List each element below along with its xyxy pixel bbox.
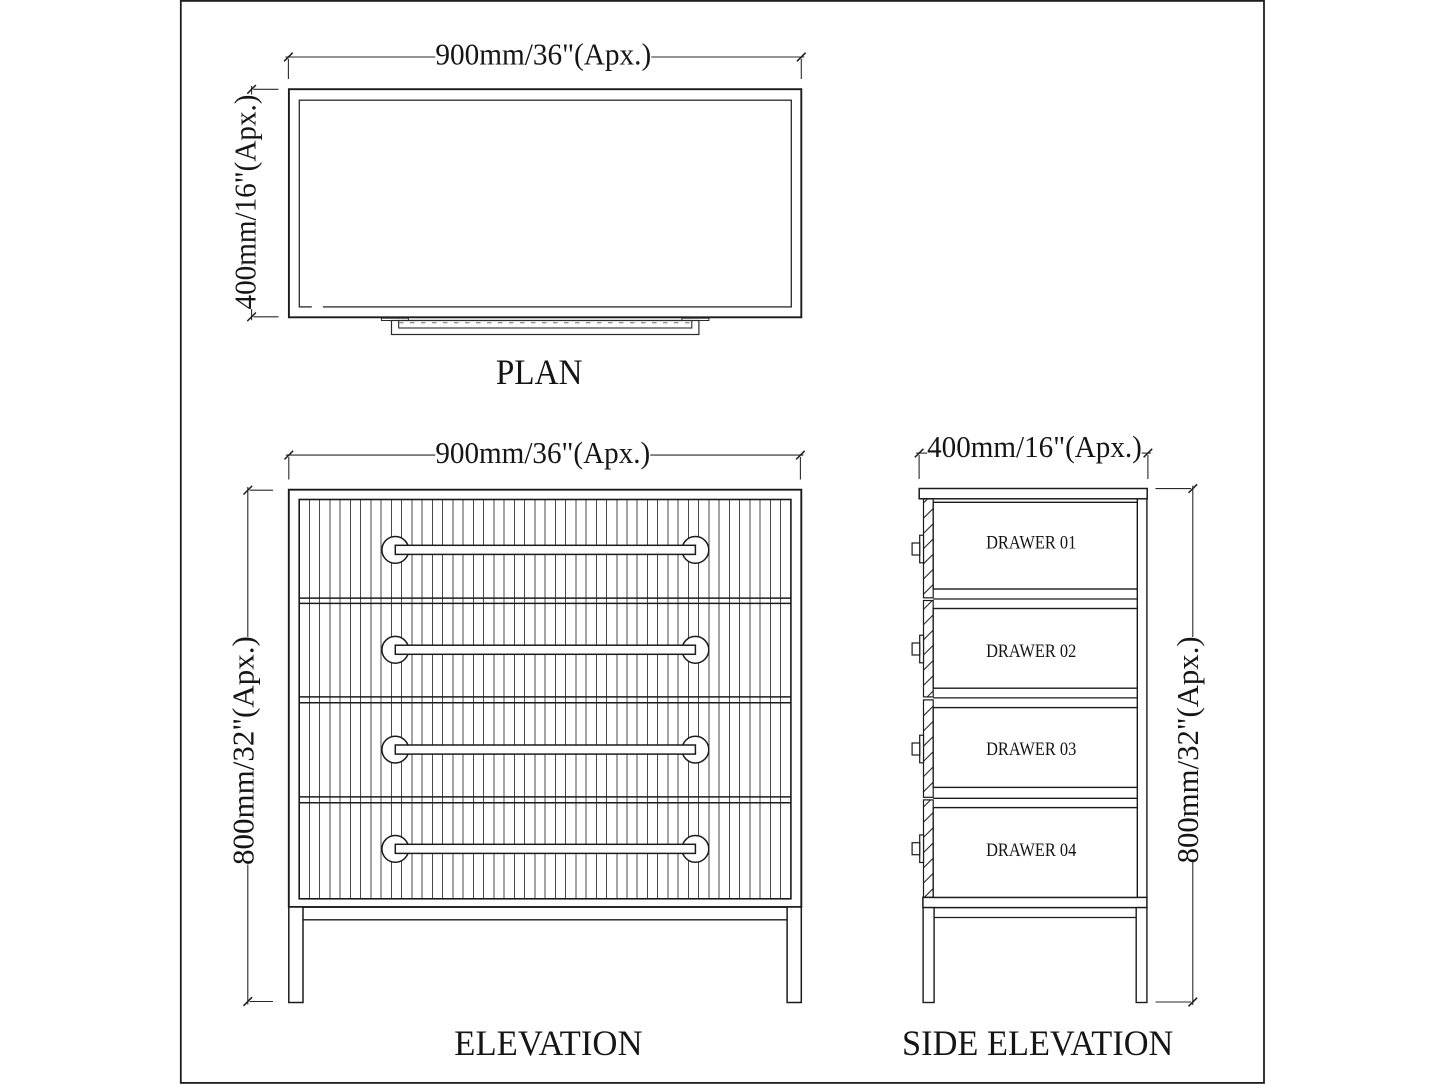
svg-text:400mm/16"(Apx.): 400mm/16"(Apx.)	[228, 94, 263, 309]
svg-text:DRAWER 04: DRAWER 04	[986, 841, 1076, 861]
svg-text:SIDE ELEVATION: SIDE ELEVATION	[902, 1023, 1173, 1063]
svg-text:400mm/16"(Apx.): 400mm/16"(Apx.)	[927, 429, 1142, 464]
svg-text:DRAWER 02: DRAWER 02	[986, 642, 1076, 662]
svg-text:800mm/32"(Apx.): 800mm/32"(Apx.)	[226, 636, 261, 865]
svg-text:PLAN: PLAN	[496, 352, 583, 392]
svg-text:900mm/36"(Apx.): 900mm/36"(Apx.)	[435, 435, 650, 470]
svg-text:ELEVATION: ELEVATION	[454, 1023, 642, 1063]
svg-text:900mm/36"(Apx.): 900mm/36"(Apx.)	[435, 37, 651, 72]
svg-text:800mm/32"(Apx.): 800mm/32"(Apx.)	[1170, 636, 1205, 863]
svg-text:DRAWER 03: DRAWER 03	[986, 740, 1076, 760]
svg-text:DRAWER 01: DRAWER 01	[986, 534, 1076, 554]
